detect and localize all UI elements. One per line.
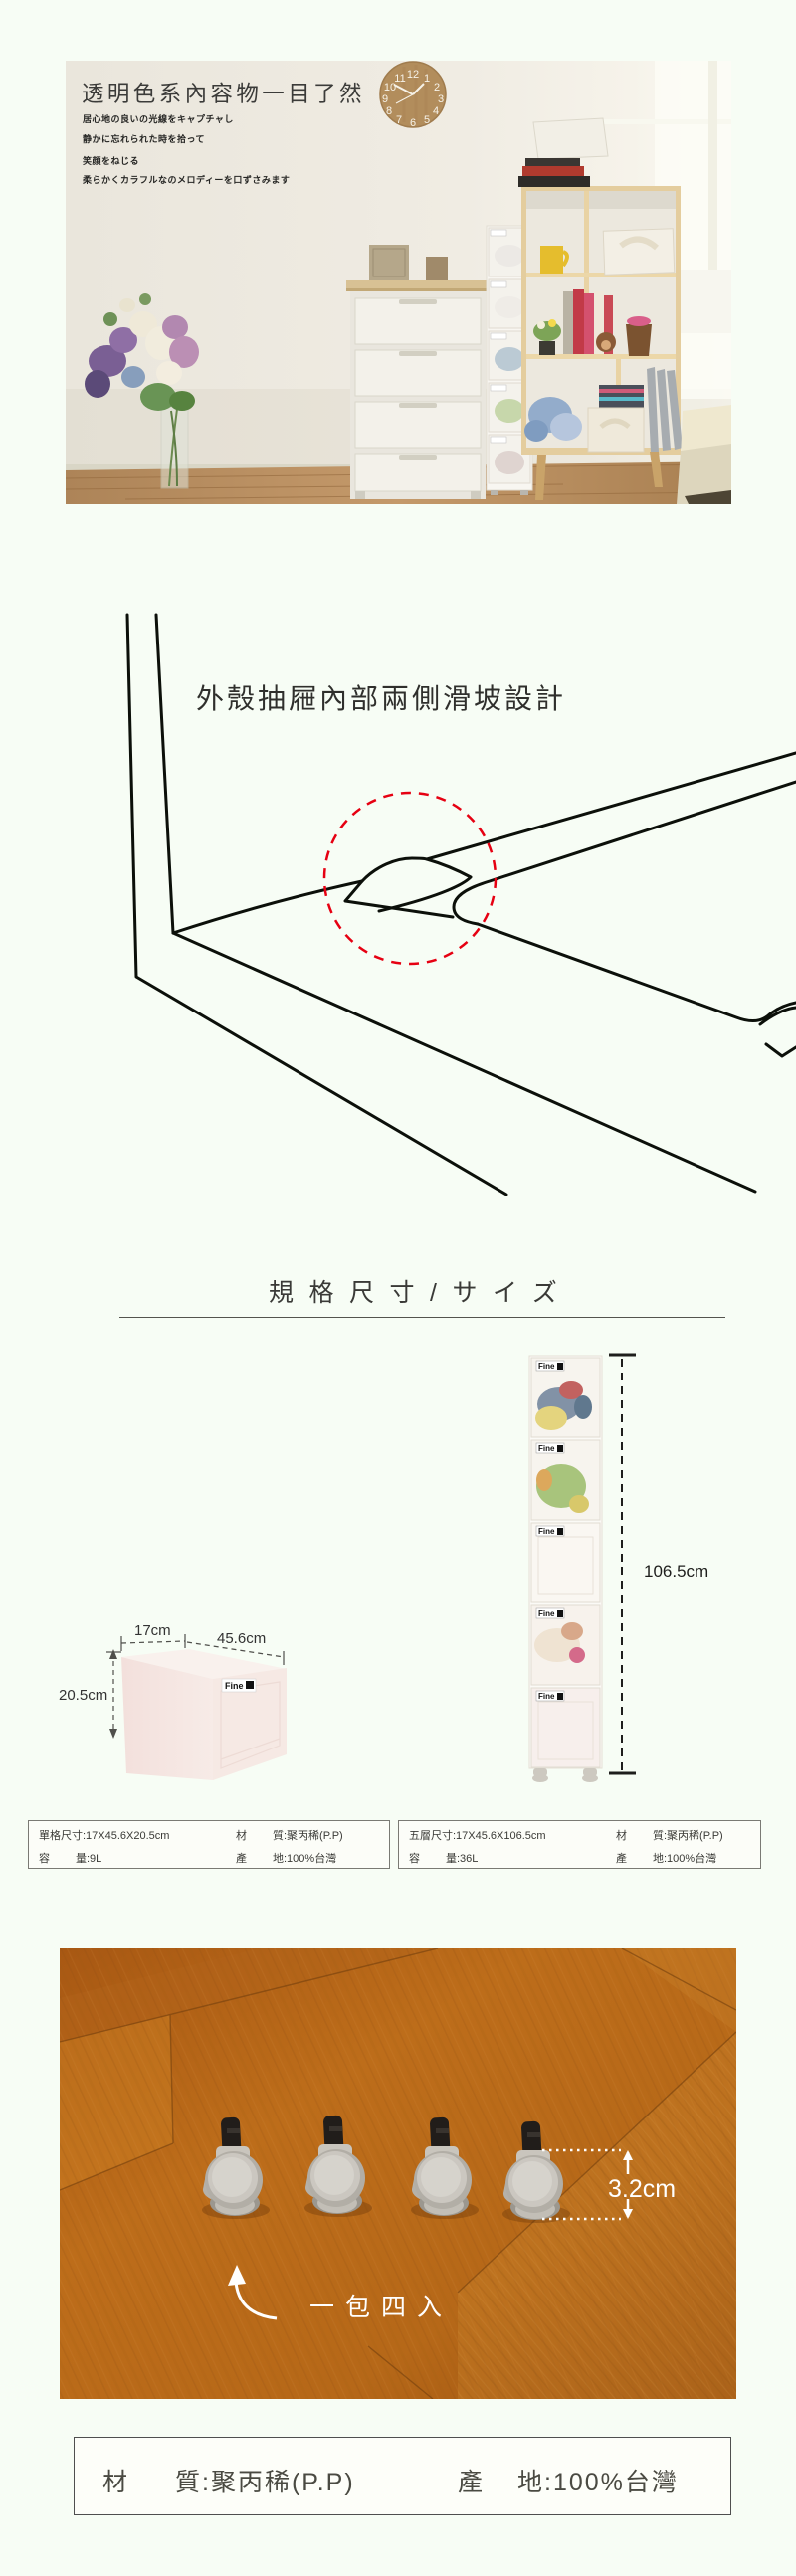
svg-text:Fine: Fine — [538, 1362, 555, 1371]
svg-text:4: 4 — [433, 105, 439, 117]
svg-text:Fine: Fine — [225, 1681, 244, 1691]
svg-text:3: 3 — [438, 93, 444, 105]
svg-text:11: 11 — [394, 73, 405, 85]
svg-text:6: 6 — [410, 117, 416, 129]
svg-text:8: 8 — [386, 105, 392, 117]
svg-text:3.2cm: 3.2cm — [608, 2175, 676, 2203]
svg-text:20.5cm: 20.5cm — [59, 1687, 107, 1704]
svg-text:Fine: Fine — [538, 1609, 555, 1618]
svg-text:Fine: Fine — [538, 1444, 555, 1453]
svg-text:5: 5 — [424, 114, 430, 126]
svg-text:17cm: 17cm — [134, 1622, 171, 1639]
svg-text:9: 9 — [382, 93, 388, 105]
svg-text:7: 7 — [396, 114, 402, 126]
svg-text:一包四入: 一包四入 — [309, 2294, 453, 2321]
svg-text:2: 2 — [434, 82, 440, 93]
svg-text:Fine: Fine — [538, 1527, 555, 1536]
svg-text:Fine: Fine — [538, 1692, 555, 1701]
svg-text:12: 12 — [407, 69, 419, 81]
svg-text:外殼抽屜內部兩側滑坡設計: 外殼抽屜內部兩側滑坡設計 — [196, 683, 566, 714]
svg-text:1: 1 — [424, 73, 430, 85]
svg-text:45.6cm: 45.6cm — [217, 1630, 266, 1647]
svg-text:106.5cm: 106.5cm — [644, 1563, 708, 1581]
